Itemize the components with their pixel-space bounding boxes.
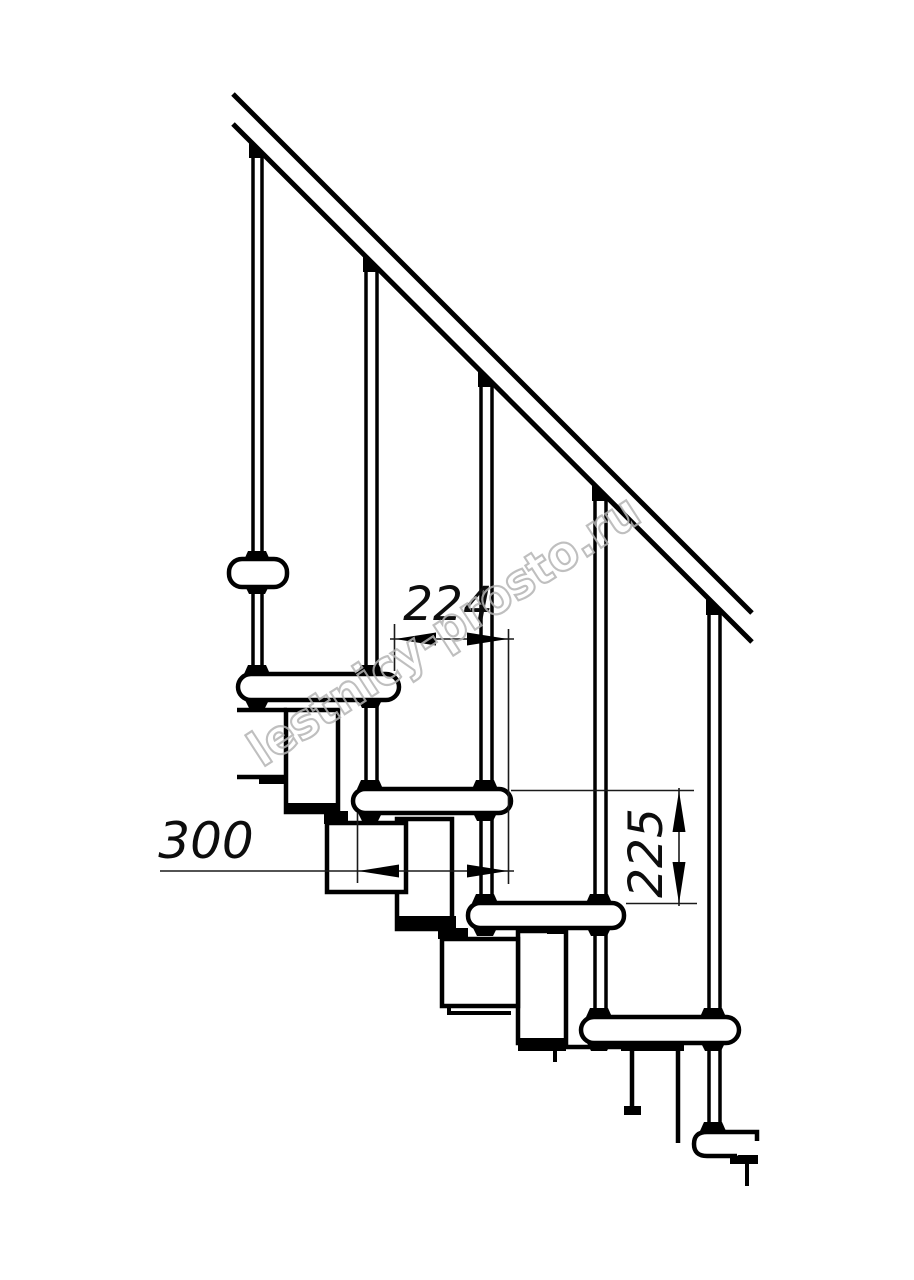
dim300-arrow-right: [467, 865, 508, 878]
nut-below-tread1-b1: [245, 586, 269, 594]
module-box-e: [518, 931, 566, 1043]
nut-above-tread5-b5: [700, 1008, 726, 1017]
dim225-label: 225: [619, 808, 674, 898]
nut-above-tread3-b2: [357, 780, 383, 789]
module-box-f-foot: [624, 1106, 641, 1115]
nut-above-tread6-b5: [700, 1122, 726, 1131]
tread-3: [353, 789, 511, 813]
module-box-d: [442, 939, 518, 1006]
dimension-225: 225: [511, 788, 697, 906]
nut-above-tread5-b4: [586, 1008, 612, 1017]
baluster-5-rail-cap: [706, 597, 724, 615]
baluster-1: [249, 140, 267, 676]
dim300-label: 300: [158, 812, 253, 870]
staircase-drawing-canvas: 224 300 225 lestnicy-prosto.ru: [0, 0, 914, 1280]
nut-below-tread4-b3: [473, 928, 497, 936]
baluster-2-rail-cap: [363, 254, 381, 272]
nut-below-tread3-b3: [473, 813, 497, 821]
nut-below-tread3-b2: [358, 813, 382, 821]
nut-below-tread5-b5: [701, 1043, 725, 1051]
nut-below-tread2-b1: [245, 700, 269, 708]
baluster-1-rail-cap: [249, 140, 267, 158]
nut-above-tread4-b4: [586, 894, 612, 903]
watermark-text: lestnicy-prosto.ru: [238, 483, 650, 778]
module-chain: [237, 710, 758, 1186]
tread-4: [468, 903, 624, 928]
staircase-technical-drawing: 224 300 225 lestnicy-prosto.ru: [0, 0, 914, 1280]
nut-above-tread2-b1: [244, 665, 270, 674]
baluster-5: [706, 597, 724, 1134]
tread-1: [229, 559, 287, 587]
tread-5: [581, 1017, 739, 1043]
nut-above-tread1-b1: [244, 551, 270, 560]
baluster-3-rail-cap: [478, 369, 496, 387]
module-box-b: [327, 823, 406, 892]
nut-below-tread4-b4: [587, 928, 611, 936]
nut-above-tread4-b3: [472, 894, 498, 903]
tread-6-partial: [694, 1132, 757, 1156]
dim225-arrow-down: [673, 862, 686, 904]
nut-above-tread3-b3: [472, 780, 498, 789]
module-box-c-bottom-flange: [397, 916, 456, 929]
dim225-arrow-up: [673, 791, 686, 832]
nut-below-tread5-b4: [587, 1043, 611, 1051]
